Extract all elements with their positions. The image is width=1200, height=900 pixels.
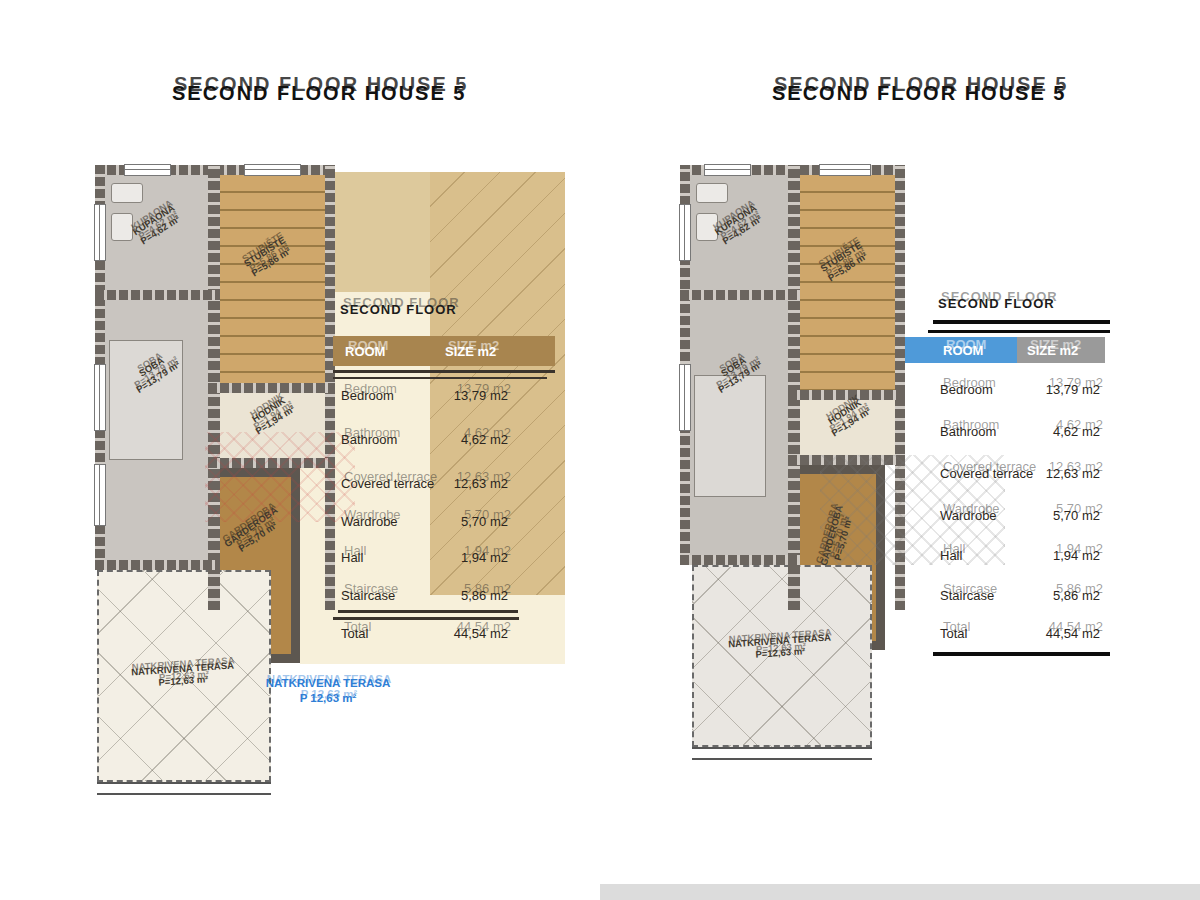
table-row-value: 5,86 m2 [1000, 588, 1100, 603]
right-window-top-2 [820, 165, 870, 175]
table-row-label: Staircase [940, 588, 994, 603]
left-window-top-1 [125, 165, 170, 175]
table-row-label: Bedroom [341, 388, 394, 403]
right-table-title: SECOND FLOOR [938, 296, 1055, 311]
right-table-rule-1 [933, 320, 1110, 324]
left-window-top-2 [245, 165, 300, 175]
left-table-rule-1 [333, 370, 555, 373]
table-row-label: Hall [940, 548, 962, 563]
left-header-size: SIZE m2 [445, 344, 496, 359]
left-roof-patch-large [430, 172, 565, 595]
right-wall-middle [788, 165, 800, 610]
bottom-gray-bar [600, 884, 1200, 900]
left-header-room: ROOM [345, 344, 385, 359]
left-roof-patch-small [335, 172, 430, 292]
table-row-value: 5,70 m2 [408, 514, 508, 529]
table-row-value: 4,62 m2 [408, 432, 508, 447]
table-row-label: Wardrobe [341, 514, 398, 529]
left-table-title: SECOND FLOOR [340, 302, 457, 317]
left-total-rule-2 [333, 617, 519, 620]
right-terrace-railing [692, 747, 872, 760]
overlay-name: NATKRIVENA TERASA [258, 676, 398, 691]
table-row-value: 1,94 m2 [1000, 548, 1100, 563]
left-terrace-blue-overlay: NATKRIVENA TERASA P 12,63 m² [258, 676, 398, 706]
left-window-left-1 [95, 205, 105, 260]
table-row-value: 1,94 m2 [408, 550, 508, 565]
right-wall-bath-bottom [680, 290, 800, 300]
right-table-bottom-rule [933, 652, 1110, 656]
table-row-label: Wardrobe [940, 508, 997, 523]
right-panel-title: SECOND FLOOR HOUSE 5 [772, 82, 1066, 105]
table-row-label: Bathroom [940, 424, 996, 439]
table-row-value: 5,86 m2 [408, 588, 508, 603]
total-row-value: 44,54 m2 [408, 626, 508, 641]
table-row-label: Bedroom [940, 382, 993, 397]
table-row-value: 12,63 m2 [408, 476, 508, 491]
floorplan-page: SECOND FLOOR HOUSE 5 KUPAONA [0, 0, 1200, 900]
table-row-label: Hall [341, 550, 363, 565]
left-wall-bedroom-bottom [95, 560, 220, 570]
right-header-size: SIZE m2 [1027, 343, 1078, 358]
right-header-room: ROOM [943, 343, 983, 358]
left-panel-title: SECOND FLOOR HOUSE 5 [172, 82, 466, 105]
left-total-rule-1 [338, 610, 518, 613]
right-header-room-cell: ROOM [905, 337, 1017, 363]
total-row-label: Total [940, 626, 967, 641]
table-row-value: 4,62 m2 [1000, 424, 1100, 439]
right-header-size-cell: SIZE m2 [1017, 337, 1105, 363]
right-window-left-2 [680, 365, 690, 430]
right-sink-fixture [696, 183, 728, 203]
engel-voelkers-watermark [205, 432, 355, 522]
total-row-value: 44,54 m2 [1000, 626, 1100, 641]
left-table-header-bar: ROOM SIZE m2 [333, 336, 555, 366]
table-row-value: 13,79 m2 [408, 388, 508, 403]
left-table-rule-2 [333, 377, 547, 379]
right-table-rule-2 [928, 330, 1110, 333]
table-row-value: 12,63 m2 [1000, 466, 1100, 481]
left-window-left-3 [95, 465, 105, 525]
table-row-value: 5,70 m2 [1000, 508, 1100, 523]
table-row-label: Bathroom [341, 432, 397, 447]
right-window-left-1 [680, 205, 690, 260]
overlay-area: P 12,63 m² [258, 691, 398, 706]
right-wall-bedroom-bottom [680, 555, 800, 565]
table-row-value: 13,79 m2 [1000, 382, 1100, 397]
table-row-label: Staircase [341, 588, 395, 603]
left-window-left-2 [95, 365, 105, 430]
left-terrace-railing [97, 782, 271, 795]
total-row-label: Total [341, 626, 368, 641]
left-sink-fixture [111, 183, 143, 203]
right-window-top-1 [705, 165, 750, 175]
left-wall-bath-bottom [95, 290, 220, 300]
